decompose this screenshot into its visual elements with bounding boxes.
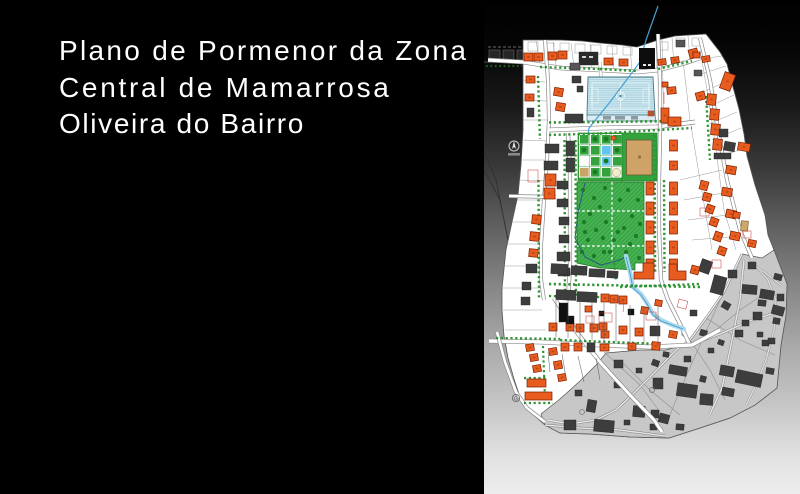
svg-text:G: G xyxy=(514,397,518,403)
